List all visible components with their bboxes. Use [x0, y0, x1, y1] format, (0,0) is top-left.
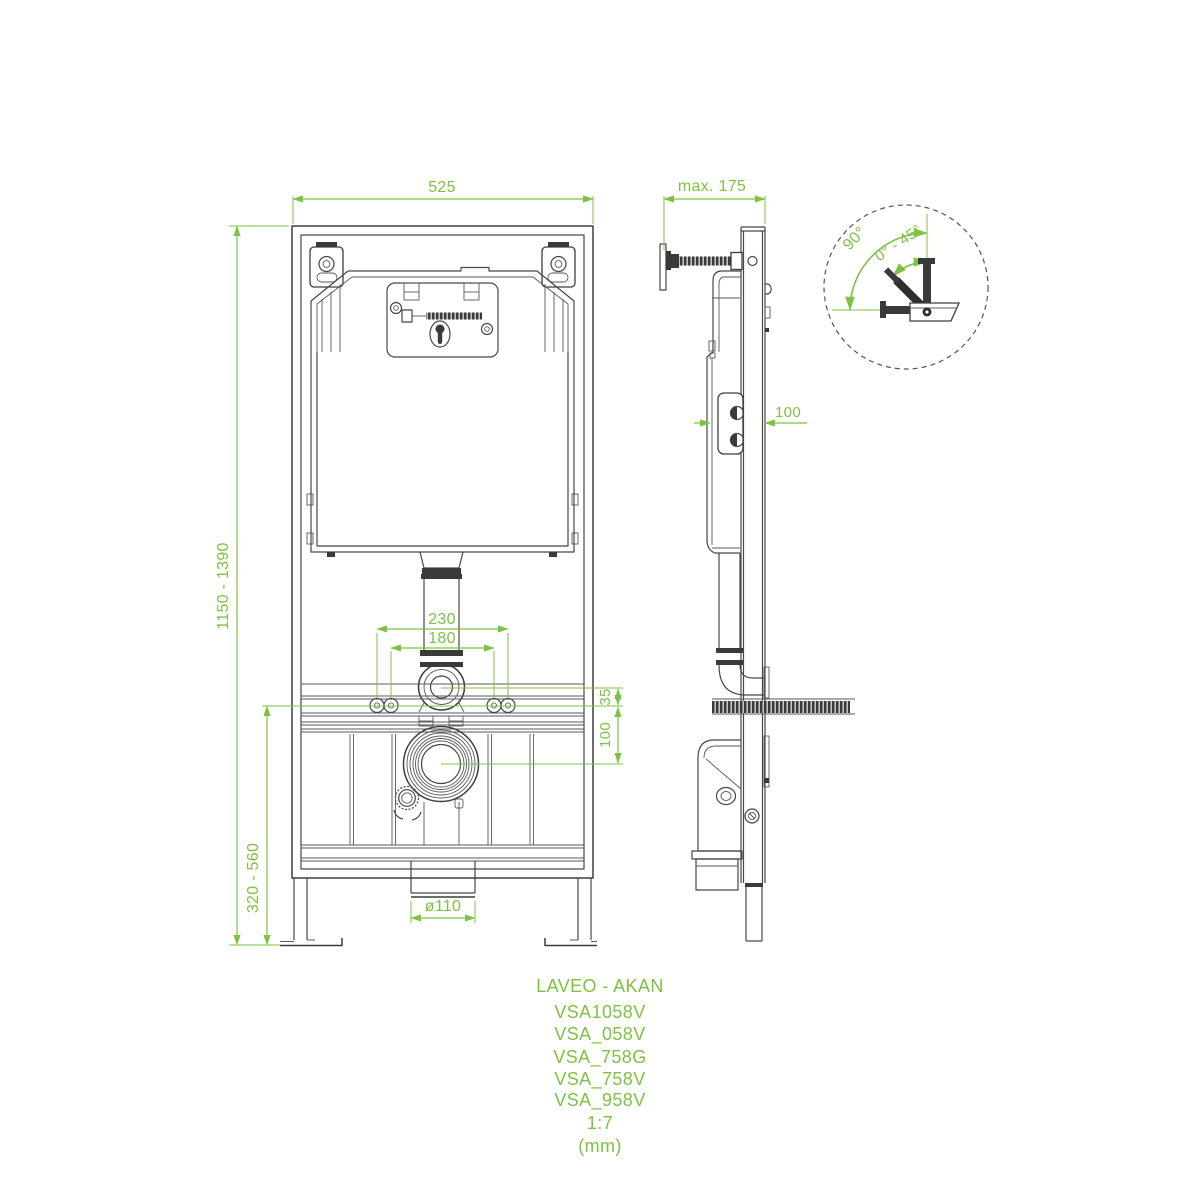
model-code: VSA_758V — [554, 1069, 645, 1090]
model-code: VSA_958V — [554, 1090, 645, 1111]
technical-drawing-svg: 525 1150 - 1390 320 - 560 230 180 35 100… — [0, 0, 1200, 1200]
dim-flush-offset: 35 — [597, 688, 614, 705]
product-series: LAVEO - AKAN — [536, 976, 664, 996]
title-block: LAVEO - AKAN VSA1058V VSA_058V VSA_758G … — [536, 976, 664, 1156]
side-view — [660, 227, 855, 941]
threaded-rod — [426, 313, 482, 320]
side-drain-elbow — [692, 740, 742, 890]
dim-overall-width: 525 — [428, 179, 456, 196]
lower-struts — [301, 734, 584, 861]
side-dimensions: max. 175 100 — [664, 178, 807, 423]
dim-lower-height-range: 320 - 560 — [245, 843, 262, 913]
dim-wall-clearance: 100 — [775, 404, 801, 421]
model-code: VSA1058V — [554, 1002, 645, 1022]
bowl-studs — [712, 699, 855, 714]
dim-overall-height-range: 1150 - 1390 — [215, 542, 232, 630]
drawing-canvas: 525 1150 - 1390 320 - 560 230 180 35 100… — [0, 0, 1200, 1200]
access-window — [387, 283, 498, 357]
side-plate-screws — [718, 393, 744, 454]
arc-45deg — [893, 262, 927, 276]
dim-fixing-span-outer: 230 — [428, 611, 456, 628]
dim-fixing-span-inner: 180 — [428, 630, 456, 647]
corner-bracket-left — [310, 242, 343, 287]
side-flush-pipe — [716, 553, 764, 695]
dim-drain-offset: 100 — [597, 722, 614, 748]
front-view — [280, 226, 597, 946]
rail-front-fittings — [745, 284, 771, 823]
bolt-rail — [301, 684, 584, 732]
flush-elbow — [419, 664, 465, 710]
model-code: VSA_058V — [554, 1024, 645, 1045]
wall-anchor-rod — [660, 244, 742, 290]
screw-icon — [391, 303, 402, 314]
hose-clamp — [394, 787, 421, 821]
model-code: VSA_758G — [553, 1047, 646, 1068]
drawing-scale: 1:7 — [587, 1113, 613, 1133]
support-rod-positions — [880, 258, 959, 321]
dim-outlet-diameter: ø110 — [425, 898, 461, 915]
rail-hole — [748, 257, 757, 266]
detail-circle: 90° 0° - 45° — [824, 205, 988, 369]
screw-icon — [482, 324, 493, 335]
drawing-units: (mm) — [578, 1136, 622, 1156]
side-rail — [741, 227, 765, 941]
corner-bracket-right — [542, 242, 575, 287]
dim-mount-angle-max: 90° — [840, 224, 870, 254]
dim-mount-angle-range: 0° - 45° — [872, 221, 925, 265]
dim-max-depth: max. 175 — [678, 178, 746, 195]
outlet-pipe — [411, 861, 475, 897]
mount-bracket — [910, 303, 959, 321]
